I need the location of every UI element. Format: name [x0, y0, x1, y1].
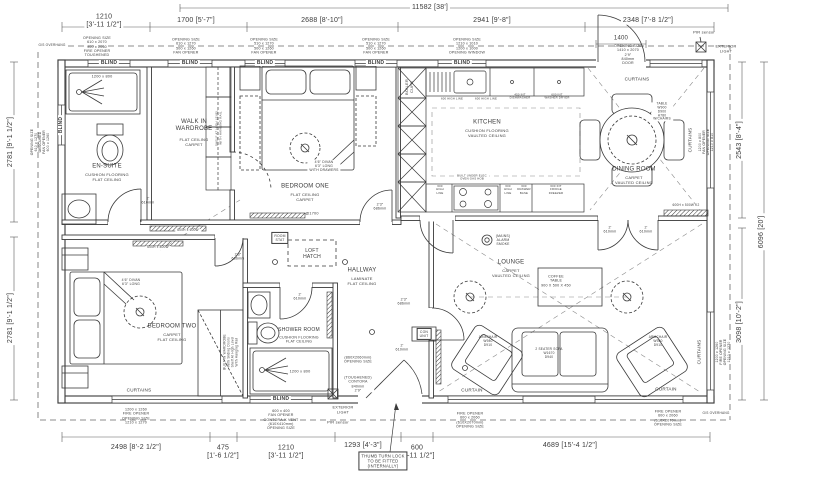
dim-porch-width: 1293 [4'-3"] — [342, 442, 384, 450]
curtains-lounge-right: CURTAINS — [696, 340, 702, 365]
bed-two-spec: 4'6" DIVAN 6'3" LONG — [120, 278, 143, 286]
armchair-left-spec: ARMCHAIR W980 D910 — [479, 336, 498, 348]
sofa-spec: 2 SEATER SOFA W1670 D940 — [535, 348, 562, 360]
room-dining-spec: CARPET VAULTED CEILING — [615, 176, 653, 186]
blind-ensuite-top: BLIND — [99, 60, 119, 66]
room-bedroom-one: BEDROOM ONE — [281, 183, 329, 190]
boiler-cupboard: BOILER CUPB — [405, 79, 415, 95]
exterior-light-top: EXTERIOR LIGHT — [715, 44, 736, 53]
dim-kitchen-width: 2941 [9'-8"] — [471, 17, 513, 25]
floor-plan: 11582 [38']1210 [3'-11 1/2"]1700 [5'-7"]… — [0, 0, 830, 485]
opening-bedroom-two: 1200 x 1260 FIRE OPENER OPENING SIZE 121… — [122, 407, 150, 424]
blind-ensuite-left: BLIND — [58, 115, 64, 135]
door-ensuite: 2' 610mm — [142, 197, 155, 206]
smoke-alarm: (MAINS) ALARM SMOKE — [496, 234, 510, 246]
blind-shower-room: BLIND — [271, 396, 291, 402]
dim-wardrobe-recess: 475 [1'-6 1/2"] — [205, 445, 241, 462]
unit-highline-a: 600 HIGH LINE — [441, 97, 463, 100]
room-wardrobe-spec: FLAT CEILING CARPET — [180, 138, 209, 148]
armchair-right-spec: ARMCHAIR W980 D910 — [649, 336, 668, 348]
opening-kitchen-window: OPENING SIZE 1210 x 1010 1200 x 1000 OPE… — [449, 37, 485, 54]
dim-left-bottom: 2781 [9'-1 1/2"] — [7, 291, 15, 345]
curtains-bedroom-two: CURTAINS — [127, 387, 152, 393]
room-ensuite-spec: CUSHION FLOORING FLAT CEILING — [85, 173, 129, 183]
opening-bedroom-one-a: OPENING SIZE 510 x 1270 500 x 1260 FAN O… — [250, 37, 278, 54]
opening-entrance-door: OPENING SIZE 1410 x 2070 2'9" 840mm DOOR — [614, 44, 642, 66]
room-dining: DINING ROOM — [612, 166, 656, 173]
unit-highline-d: 600 HIGH LINE — [504, 185, 512, 195]
door-bedroom-one: 2'3" 686mm — [374, 203, 387, 212]
dim-wardrobe-width: 1700 [5'-7"] — [175, 17, 217, 25]
radiator-dining: 600H x 500W K2 — [671, 204, 702, 208]
dim-shower-room-width: 1210 [3'-11 1/2"] — [266, 445, 305, 462]
door-lounge: 2'3" 686mm — [398, 298, 411, 307]
opening-dining-right: 1200 x 800 FAN OPENER OPENING SIZE 1210 … — [698, 129, 714, 156]
unit-dishwasher: 450 INT DISHWASHER — [510, 94, 531, 101]
unit-drawer-base: 600 DRAWER BASE — [517, 185, 531, 195]
door-bedroom-two: 2'3" 686mm — [232, 253, 245, 262]
thumb-turn-note: THUMB TURN LOCK TO BE FITTED (INTERNALLY… — [358, 451, 407, 470]
dim-lounge-depth: 3098 [10'-2"] — [736, 299, 744, 345]
unit-highline-b: 600 HIGH LINE — [475, 97, 497, 100]
built-in-wardrobe-note: BUILT IN WARDROBE With Sliding Doors She… — [223, 334, 238, 370]
room-bedroom-two-spec: CARPET FLAT CEILING — [158, 333, 187, 343]
dim-entrance-door: 1400 — [612, 35, 630, 42]
door-front: 2' 610mm — [396, 344, 409, 353]
room-bedroom-two: BEDROOM TWO — [148, 323, 197, 330]
radiator-bedroom-two: 600H x 800W — [145, 246, 171, 250]
dim-overall-depth: 6096 [20'] — [758, 214, 766, 251]
room-wardrobe: WALK IN WARDROBE — [176, 119, 213, 133]
shower-size-shower-room: 1200 x 800 — [290, 370, 311, 375]
front-door-opening: (860X2060mm) OPENING SIZE — [342, 356, 374, 365]
opening-ensuite-left: OPENING SIZE 610 x 1270 OBSCURED FAN OPE… — [30, 129, 50, 156]
radiator-hall: 600H x 600W — [175, 229, 201, 233]
blind-bedroom-one-a: BLIND — [255, 60, 275, 66]
opening-wardrobe: OPENING SIZE 610 x 1270 500 x 1260 FAN O… — [172, 37, 200, 54]
exterior-light-bottom: EXTERIOR LIGHT — [332, 405, 353, 414]
bed-one-spec: 4'6" DIVAN 6'3" LONG WITH DRAWERS — [307, 160, 340, 172]
room-shower: SHOWER ROOM — [278, 327, 320, 333]
room-kitchen: KITCHEN — [473, 119, 501, 126]
opening-lounge-b: FIRE OPENER 600 x 2060 (610X2070mm) OPEN… — [654, 409, 682, 426]
blind-bedroom-one-b: BLIND — [366, 60, 386, 66]
coffee-table-spec: COFFEE TABLE 900 X 500 X 450 — [541, 275, 571, 288]
blind-kitchen: BLIND — [452, 60, 472, 66]
dining-table-spec: TABLE W900 D900 H780 W/CHAIRS — [651, 102, 673, 121]
room-lounge-spec: CARPET VAULTED CEILING — [492, 269, 530, 279]
dim-dining-width: 2348 [7'-8 1/2"] — [621, 17, 675, 25]
door-dining-left: 2' 610mm — [604, 226, 617, 235]
bed-one-light-height: @1700 — [305, 212, 318, 217]
opening-shower-vent: 600 x 400 FAN OPENER CONTORA-K VENT (610… — [264, 409, 299, 431]
pir-sensor-bottom: PIR sensor — [327, 421, 349, 426]
dim-bedroom-one-width: 2688 [8'-10"] — [299, 17, 345, 25]
room-bedroom-one-spec: FLAT CEILING CARPET — [291, 193, 320, 203]
opening-ensuite-top: OPENING SIZE 610 x 2070 900 x 2060 FIRE … — [83, 36, 111, 58]
front-door-spec: (TOUGHENED) CONTORA 840mm 2'9" — [342, 375, 374, 392]
door-shower-room: 2' 610mm — [294, 293, 307, 302]
opening-bedroom-one-b: OPENING SIZE 510 x 1270 500 x 1260 FAN O… — [362, 37, 390, 54]
unit-highline-c: 600 HIGH LINE — [436, 185, 444, 195]
room-kitchen-spec: CUSHION FLOORING VAULTED CEILING — [465, 129, 509, 139]
dim-overall-width: 11582 [38'] — [410, 4, 450, 12]
unit-oven-hob: BUILT UNDER ELEC OVEN GAS HOB — [455, 175, 489, 182]
overhang-note-bottom: G/S OVERHANG — [700, 412, 731, 416]
blind-wardrobe: BLIND — [180, 60, 200, 66]
room-lounge: LOUNGE — [498, 259, 525, 266]
unit-fridge-freezer: 600 INT FRIDGE FREEZER — [549, 185, 563, 195]
door-dining-right: 2' 610mm — [640, 226, 653, 235]
overhang-note-top: G/S OVERHANG — [36, 44, 67, 48]
opening-lounge-right: 1200 x 1260 FIRE OPENER OPENING SIZE 121… — [715, 339, 731, 366]
curtains-entrance: CURTAINS — [625, 76, 650, 82]
pir-sensor-top: PIR sensor — [693, 31, 715, 36]
curtain-lounge-b: CURTAIN — [655, 386, 676, 392]
dim-ensuite-width: 1210 [3'-11 1/2"] — [84, 14, 123, 31]
room-hallway: HALLWAY — [348, 267, 377, 274]
dim-bedroom-two-width: 2498 [8'-2 1/2"] — [109, 444, 163, 452]
room-shower-spec: CUSHION FLOORING FLAT CEILING — [279, 336, 319, 345]
curtain-lounge-a: CURTAIN — [461, 387, 482, 393]
opening-lounge-a: FIRE OPENER 600 x 2060 (610X2070mm) OPEN… — [456, 411, 484, 428]
walk-in-wardrobe-note: SHELF AT HIGH LEVEL WITH HANGING RAIL — [215, 110, 222, 146]
room-stat: ROOM STAT — [271, 232, 288, 244]
dim-left-top: 2781 [9'-1 1/2"] — [7, 115, 15, 169]
room-hallway-spec: LAMINATE FLAT CEILING — [348, 277, 377, 287]
labels-layer: 11582 [38']1210 [3'-11 1/2"]1700 [5'-7"]… — [0, 0, 830, 485]
curtains-dining-right: CURTAINS — [687, 128, 693, 153]
unit-washer-dryer: 600 INT WASHER DRYER — [544, 94, 569, 101]
dim-lounge-width: 4689 [15'-4 1/2"] — [541, 442, 599, 450]
shower-size-ensuite: 1200 x 800 — [92, 75, 113, 80]
room-ensuite: EN-SUITE — [92, 163, 122, 170]
consumer-unit: CON UNIT — [417, 328, 432, 340]
dim-dining-depth: 2543 [8'-4"] — [736, 119, 744, 161]
loft-hatch: LOFT HATCH — [303, 248, 321, 260]
